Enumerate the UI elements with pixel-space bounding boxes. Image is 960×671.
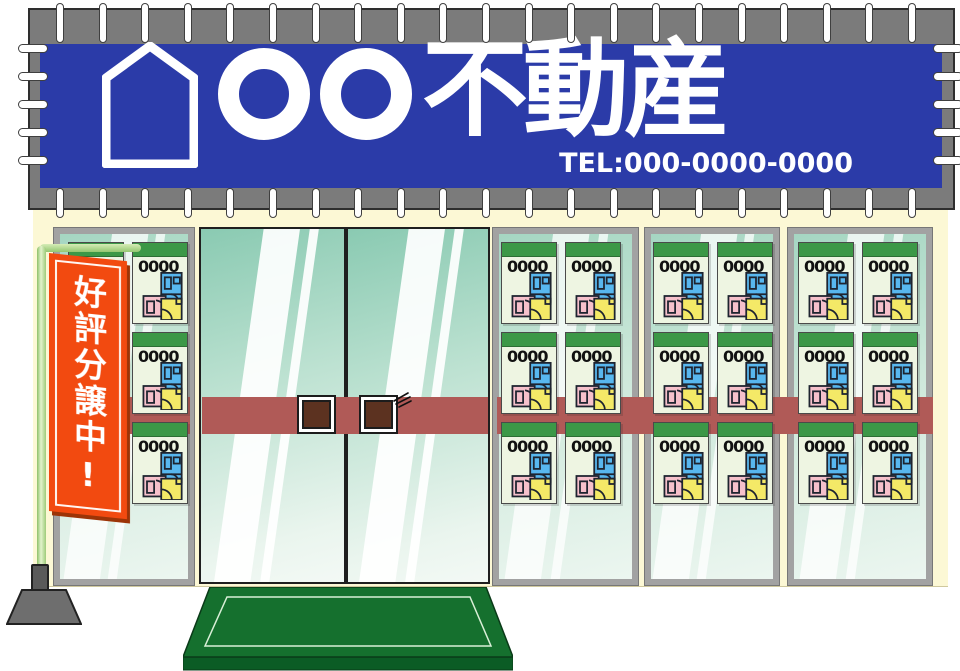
banner-tie [610,188,618,218]
push-bar-band [202,397,488,434]
banner-tie [567,3,575,43]
banner-tie [652,188,660,218]
property-flyer: 0000 [653,422,709,504]
banner-tie [823,3,831,43]
flyer-header-strip [566,423,620,437]
floorplan-icon [511,362,553,410]
property-flyer: 0000 [501,332,557,414]
banner-tie [99,3,107,43]
flyer-header-strip [133,333,187,347]
banner-tie [226,3,234,43]
floorplan-icon [727,452,769,500]
property-flyer: 0000 [717,422,773,504]
banner-tie [99,188,107,218]
door-handle-left [297,395,336,434]
property-flyer: 0000 [565,242,621,324]
flyer-header-strip [799,333,853,347]
banner-tie [525,188,533,218]
nobori-flag: 好評分譲中! [49,253,127,519]
banner-tie [354,188,362,218]
flyer-header-strip [566,243,620,257]
floorplan-icon [511,272,553,320]
floorplan-icon [511,452,553,500]
flyer-header-strip [863,423,917,437]
banner-tie [482,188,490,218]
flyer-header-strip [799,423,853,437]
flyer-header-strip [502,423,556,437]
floorplan-icon [142,272,184,320]
company-name-text: 不動産 [422,37,725,143]
floorplan-icon [872,452,914,500]
banner-tie [610,3,618,43]
property-flyer: 0000 [653,242,709,324]
flyer-grid-right-3: 0000 0000 [798,242,918,504]
banner-tie [780,3,788,43]
flyer-header-strip [502,333,556,347]
flag-pole-arm [40,244,141,252]
floorplan-icon [575,272,617,320]
banner-tie [908,188,916,218]
floorplan-icon [142,452,184,500]
floorplan-icon [808,272,850,320]
banner-tie [567,188,575,218]
flag-inner-border [55,260,121,513]
banner-tie [269,188,277,218]
property-flyer: 0000 [798,242,854,324]
banner-tie [184,3,192,43]
property-flyer: 0000 [862,242,918,324]
banner-tie [141,188,149,218]
property-flyer: 0000 [862,422,918,504]
flyer-header-strip [718,243,772,257]
property-flyer: 0000 [798,332,854,414]
floorplan-icon [663,452,705,500]
flyer-header-strip [133,243,187,257]
banner-tie [865,3,873,43]
flyer-grid-right-1: 0000 0000 [501,242,621,504]
house-icon [102,42,198,168]
property-flyer: 0000 [717,242,773,324]
banner-tie [933,44,960,53]
banner-tie [525,3,533,43]
banner-tie [397,188,405,218]
flag-base [6,589,82,625]
banner-tie [865,188,873,218]
floorplan-icon [808,452,850,500]
banner-tie [439,188,447,218]
property-flyer: 0000 [798,422,854,504]
flyer-header-strip [133,423,187,437]
motion-lines-icon [393,391,413,409]
property-flyer: 0000 [565,422,621,504]
shop-sign-banner: 不動産 TEL:000-0000-0000 [28,8,955,210]
flyer-header-strip [718,333,772,347]
banner-tie [18,156,48,165]
banner-tie [184,188,192,218]
floorplan-icon [727,272,769,320]
floorplan-icon [142,362,184,410]
banner-tie [354,3,362,43]
flyer-header-strip [654,243,708,257]
flyer-header-strip [863,333,917,347]
banner-tie [908,3,916,43]
floorplan-icon [872,272,914,320]
floorplan-icon [727,362,769,410]
flyer-header-strip [654,423,708,437]
property-flyer: 0000 [501,422,557,504]
floorplan-icon [575,452,617,500]
banner-tie [933,128,960,137]
phone-number: TEL:000-0000-0000 [559,148,853,179]
banner-tie [312,3,320,43]
banner-tie [141,3,149,43]
name-placeholder-circle [320,48,412,140]
banner-tie [933,72,960,81]
banner-tie [780,188,788,218]
door-handle-plate [364,400,393,429]
banner-tie [56,3,64,43]
property-flyer: 0000 [717,332,773,414]
banner-tie [397,3,405,43]
banner-tie [823,188,831,218]
door-handle-plate [302,400,331,429]
flyer-header-strip [502,243,556,257]
real-estate-storefront-illustration: 0000 0000 [0,0,960,671]
property-flyer: 0000 [132,242,188,324]
floorplan-icon [872,362,914,410]
banner-tie [312,188,320,218]
company-name: 不動産 [218,36,725,152]
flyer-header-strip [654,333,708,347]
floorplan-icon [663,272,705,320]
banner-tie [18,44,48,53]
banner-tie [695,188,703,218]
name-placeholder-circle [218,48,310,140]
property-flyer: 0000 [565,332,621,414]
banner-tie [738,188,746,218]
banner-tie [18,72,48,81]
flyer-header-strip [718,423,772,437]
banner-tie [652,3,660,43]
banner-tie [738,3,746,43]
banner-tie [933,100,960,109]
flyer-grid-right-2: 0000 0000 [653,242,773,504]
flyer-header-strip [863,243,917,257]
property-flyer: 0000 [862,332,918,414]
property-flyer: 0000 [653,332,709,414]
banner-tie [482,3,490,43]
floorplan-icon [808,362,850,410]
entrance-mat [183,587,513,671]
banner-tie [226,188,234,218]
banner-tie [933,156,960,165]
banner-tie [18,100,48,109]
property-flyer: 0000 [132,422,188,504]
floorplan-icon [575,362,617,410]
flag-pole [37,246,46,576]
floorplan-icon [663,362,705,410]
property-flyer: 0000 [132,332,188,414]
banner-tie [56,188,64,218]
flyer-header-strip [566,333,620,347]
flyer-header-strip [799,243,853,257]
banner-tie [695,3,703,43]
banner-tie [439,3,447,43]
property-flyer: 0000 [501,242,557,324]
banner-tie [269,3,277,43]
banner-tie [18,128,48,137]
